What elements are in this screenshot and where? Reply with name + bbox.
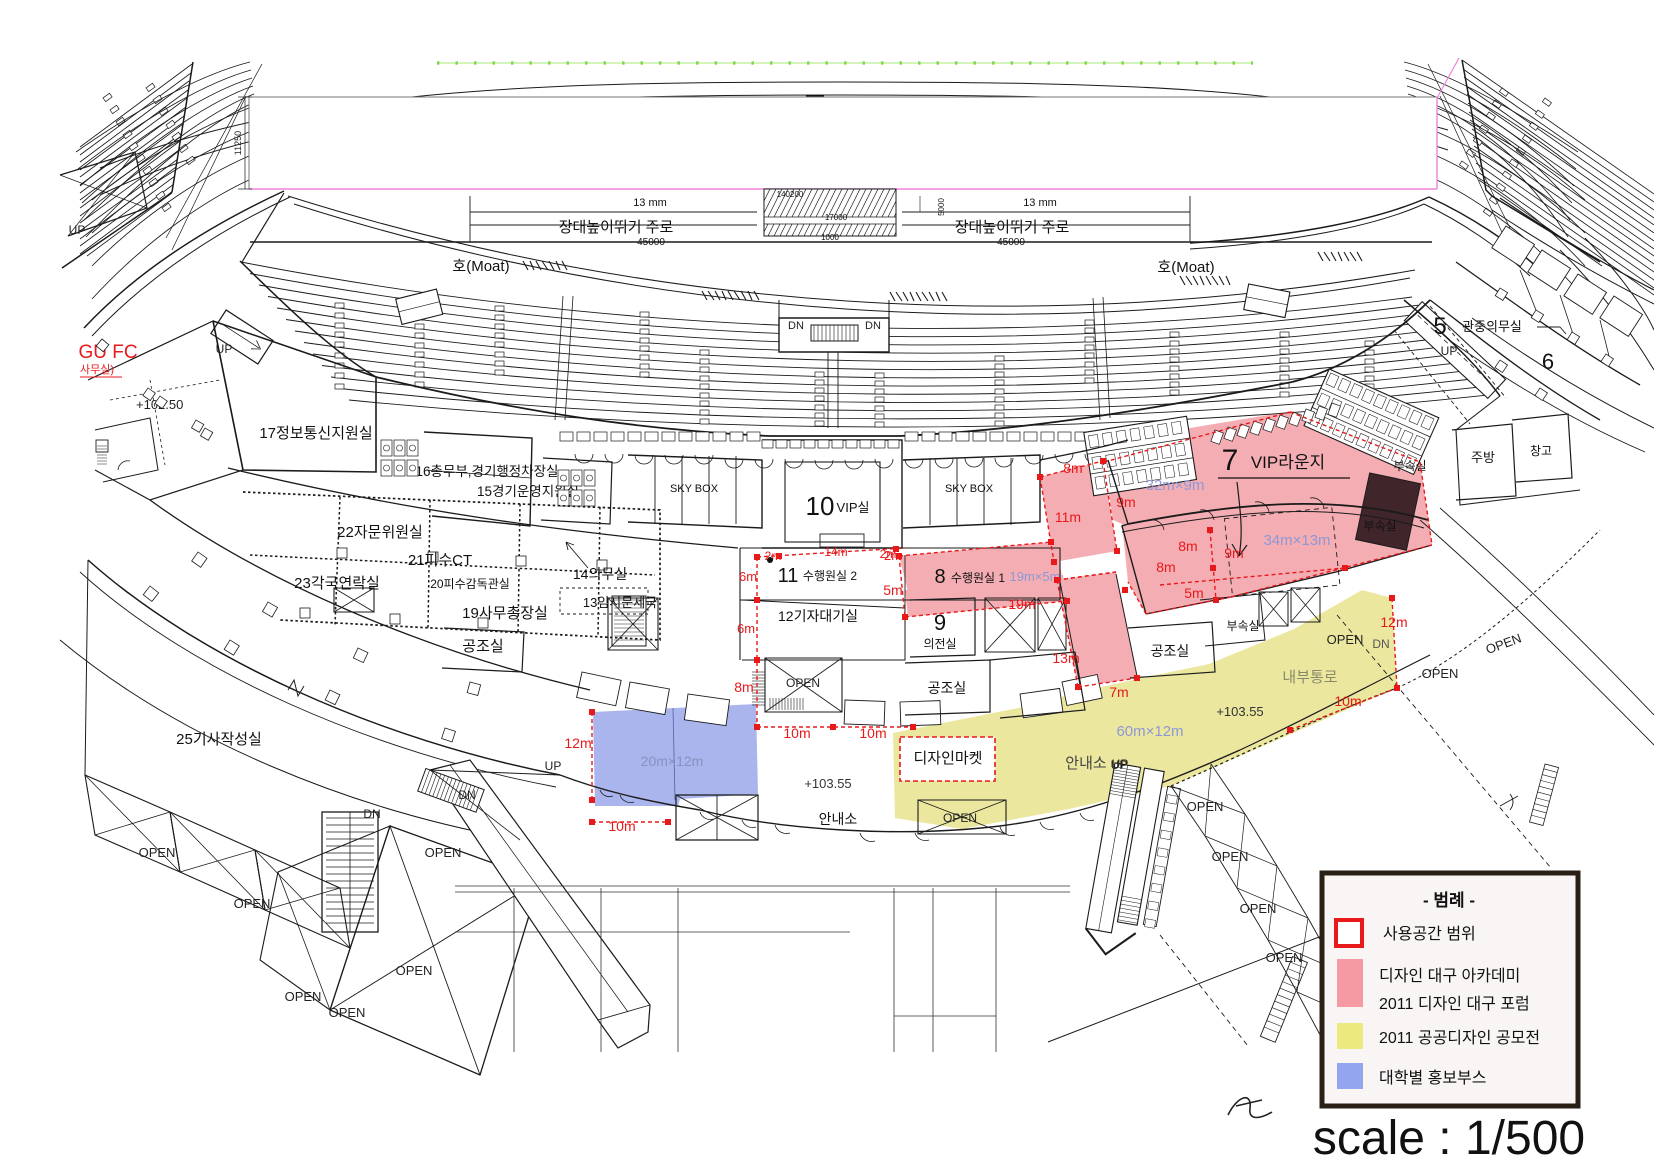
svg-text:scale : 1/500: scale : 1/500	[1313, 1112, 1585, 1165]
svg-text:12m: 12m	[1380, 614, 1407, 630]
svg-text:OPEN: OPEN	[396, 963, 433, 978]
svg-text:8m: 8m	[1063, 460, 1082, 476]
svg-text:SKY BOX: SKY BOX	[670, 483, 719, 495]
svg-text:2011 공공디자인 공모전: 2011 공공디자인 공모전	[1379, 1029, 1540, 1047]
svg-text:10m: 10m	[783, 725, 810, 741]
svg-text:1000: 1000	[821, 233, 839, 242]
svg-text:VIP라운지: VIP라운지	[1251, 453, 1325, 472]
svg-text:13 mm: 13 mm	[1023, 197, 1057, 209]
svg-text:11250: 11250	[233, 131, 243, 155]
svg-text:공조실: 공조실	[462, 638, 503, 655]
svg-text:22자문위원실: 22자문위원실	[337, 524, 423, 541]
svg-text:45000: 45000	[637, 237, 665, 248]
svg-text:DN: DN	[865, 320, 881, 332]
svg-text:12m: 12m	[564, 735, 591, 751]
svg-text:호(Moat): 호(Moat)	[452, 258, 509, 275]
svg-text:사용공간 범위: 사용공간 범위	[1383, 925, 1476, 943]
svg-text:OPEN: OPEN	[1422, 666, 1459, 681]
svg-text:19m: 19m	[1008, 596, 1035, 612]
svg-text:OPEN: OPEN	[943, 811, 977, 825]
svg-text:140200: 140200	[777, 190, 804, 199]
svg-text:안내소: 안내소	[1065, 755, 1107, 772]
svg-text:19사무총장실: 19사무총장실	[462, 605, 548, 622]
svg-text:45000: 45000	[997, 237, 1025, 248]
svg-text:14의무실: 14의무실	[573, 566, 627, 582]
svg-text:9m: 9m	[1116, 494, 1135, 510]
svg-text:7: 7	[1222, 444, 1239, 477]
svg-text:+103.55: +103.55	[804, 776, 851, 791]
svg-text:OPEN: OPEN	[1266, 950, 1303, 965]
svg-text:6m: 6m	[737, 621, 755, 636]
svg-text:8m: 8m	[1178, 538, 1197, 554]
svg-text:10: 10	[806, 491, 835, 521]
svg-text:16총무부,경기행정차장실: 16총무부,경기행정차장실	[416, 464, 559, 479]
svg-text:부속실: 부속실	[1226, 619, 1259, 633]
svg-text:DN: DN	[363, 807, 380, 821]
svg-text:부속실: 부속실	[1363, 519, 1396, 533]
svg-text:8: 8	[934, 566, 945, 588]
svg-text:DN: DN	[1372, 637, 1389, 651]
svg-text:OPEN: OPEN	[329, 1005, 366, 1020]
svg-text:20피수감독관실: 20피수감독관실	[430, 577, 510, 591]
svg-text:11: 11	[778, 565, 799, 587]
svg-text:34m×13m: 34m×13m	[1263, 532, 1330, 549]
svg-text:OPEN: OPEN	[285, 989, 322, 1004]
svg-text:60m×12m: 60m×12m	[1116, 723, 1183, 740]
svg-text:장대높이뛰기 주로: 장대높이뛰기 주로	[559, 219, 674, 236]
svg-text:19m×5m: 19m×5m	[1010, 569, 1061, 584]
svg-text:17정보통신지원실: 17정보통신지원실	[259, 425, 372, 442]
svg-text:VIP실: VIP실	[837, 500, 870, 515]
svg-text:OPEN: OPEN	[234, 896, 271, 911]
svg-text:의전실: 의전실	[923, 637, 956, 651]
svg-text:UP: UP	[545, 759, 562, 773]
svg-text:5m: 5m	[1184, 585, 1203, 601]
svg-text:OPEN: OPEN	[425, 845, 462, 860]
svg-text:OPEN: OPEN	[1212, 849, 1249, 864]
svg-text:내부통로: 내부통로	[1282, 669, 1337, 686]
svg-text:6m: 6m	[739, 569, 757, 584]
svg-text:11m: 11m	[1055, 509, 1081, 525]
svg-text:OPEN: OPEN	[786, 676, 820, 690]
svg-text:수행원실 1: 수행원실 1	[951, 570, 1005, 585]
svg-text:5: 5	[1433, 313, 1446, 340]
svg-text:공조실: 공조실	[1151, 643, 1190, 659]
svg-text:SKY BOX: SKY BOX	[945, 483, 994, 495]
svg-text:주방: 주방	[1471, 450, 1495, 465]
svg-text:12기자대기실: 12기자대기실	[778, 608, 858, 624]
svg-text:안내소: 안내소	[819, 811, 858, 827]
svg-text:OPEN: OPEN	[1240, 901, 1277, 916]
svg-text:13 mm: 13 mm	[633, 197, 667, 209]
svg-text:공조실: 공조실	[928, 680, 967, 696]
svg-text:10m: 10m	[608, 818, 635, 834]
svg-text:사무실): 사무실)	[80, 363, 114, 376]
svg-text:6: 6	[1542, 349, 1554, 374]
svg-text:호(Moat): 호(Moat)	[1157, 259, 1214, 276]
svg-text:수행원실 2: 수행원실 2	[803, 568, 857, 583]
svg-text:7m: 7m	[1109, 684, 1128, 700]
svg-text:창고: 창고	[1530, 444, 1552, 458]
svg-text:32m×9m: 32m×9m	[1146, 477, 1205, 494]
svg-text:17000: 17000	[825, 213, 848, 222]
svg-text:2011 디자인 대구 포럼: 2011 디자인 대구 포럼	[1379, 995, 1530, 1013]
svg-text:UP: UP	[69, 223, 86, 237]
svg-text:10m: 10m	[859, 725, 886, 741]
svg-text:OPEN: OPEN	[1327, 632, 1364, 647]
svg-text:13m: 13m	[1052, 650, 1079, 666]
svg-text:9m: 9m	[1224, 545, 1243, 561]
svg-text:OPEN: OPEN	[139, 845, 176, 860]
svg-text:장대높이뛰기 주로: 장대높이뛰기 주로	[955, 219, 1070, 236]
svg-text:DN: DN	[788, 320, 804, 332]
svg-text:DN: DN	[458, 788, 475, 802]
svg-text:10m: 10m	[1334, 693, 1361, 709]
svg-text:- 범례 -: - 범례 -	[1423, 891, 1475, 910]
svg-text:21피수CT: 21피수CT	[408, 552, 472, 569]
svg-text:디자인마켓: 디자인마켓	[913, 750, 982, 767]
svg-text:8m: 8m	[1156, 559, 1175, 575]
svg-text:25기사작성실: 25기사작성실	[176, 731, 262, 748]
svg-text:디자인 대구 아카데미: 디자인 대구 아카데미	[1379, 967, 1520, 985]
svg-text:5m: 5m	[883, 582, 902, 598]
svg-text:+103.55: +103.55	[1216, 704, 1263, 719]
svg-text:20m×12m: 20m×12m	[641, 753, 704, 769]
svg-text:5000: 5000	[937, 198, 946, 216]
svg-text:OPEN: OPEN	[1187, 799, 1224, 814]
svg-text:대학별 홍보부스: 대학별 홍보부스	[1379, 1069, 1487, 1087]
svg-text:8m: 8m	[734, 679, 753, 695]
svg-text:UP: UP	[1112, 757, 1129, 771]
